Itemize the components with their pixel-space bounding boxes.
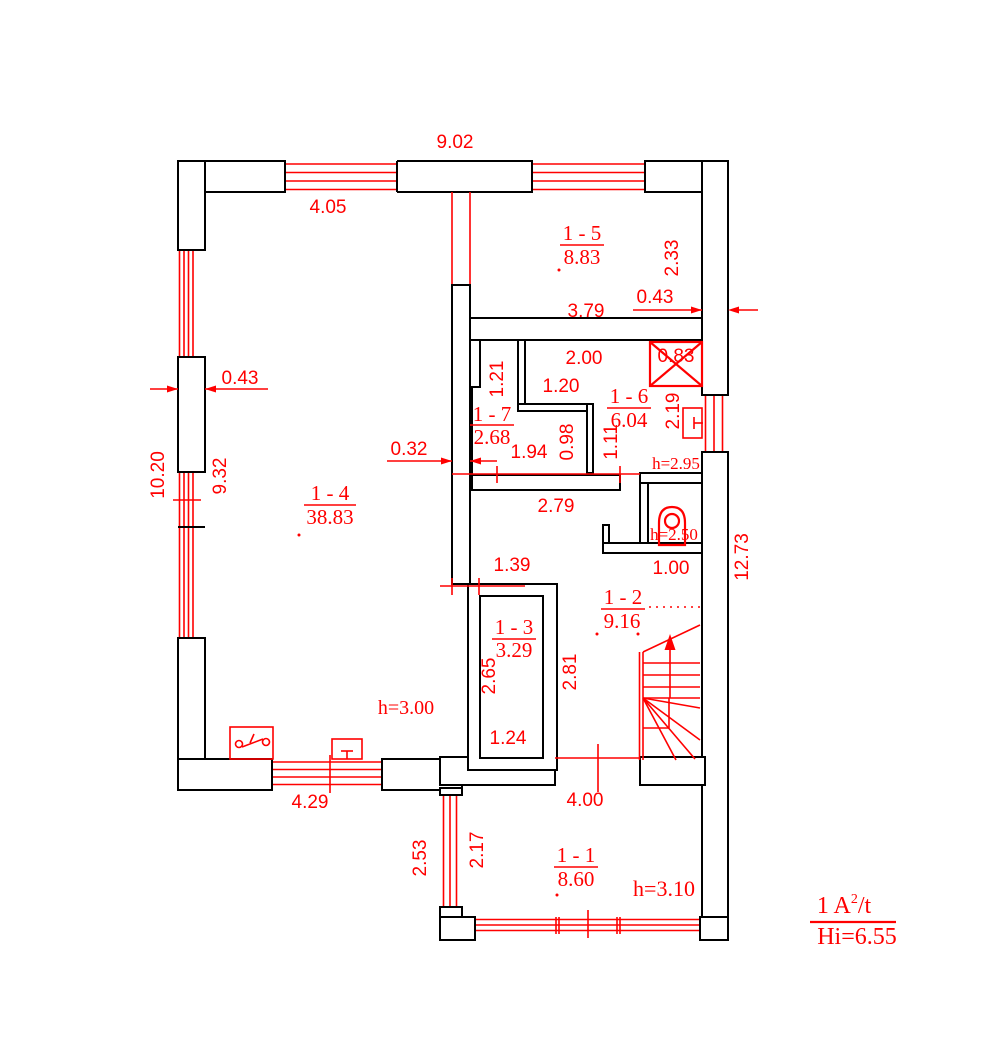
dim-room11-depth: 2.17 bbox=[467, 832, 488, 869]
window-left-lower bbox=[173, 472, 206, 638]
height-wc: h=2.50 bbox=[650, 525, 698, 544]
room-label-1-2: 1 - 2 9.16 bbox=[601, 585, 645, 633]
room-id: 1 - 3 bbox=[495, 615, 534, 639]
stairs-up-arrow-icon bbox=[665, 634, 676, 698]
room-id: 1 - 2 bbox=[604, 585, 643, 609]
room-area: 6.04 bbox=[611, 408, 648, 432]
staircase bbox=[640, 625, 701, 760]
legend-total-height: Hi=6.55 bbox=[817, 924, 897, 950]
room-area: 8.83 bbox=[564, 245, 601, 269]
window-top-left bbox=[285, 160, 397, 193]
dim-hall-width: 2.79 bbox=[538, 496, 575, 517]
room-label-1-3: 1 - 3 3.29 bbox=[492, 615, 536, 662]
height-room14: h=3.00 bbox=[378, 697, 434, 719]
dim-wall-left: 0.43 bbox=[222, 368, 259, 389]
room-id: 1 - 5 bbox=[563, 221, 602, 245]
dim-room16-niche-depth: 1.20 bbox=[543, 376, 580, 397]
dim-room17-width: 1.94 bbox=[511, 442, 548, 463]
title-block: 1 A2/t Hi=6.55 bbox=[810, 892, 897, 950]
dim-room16-niche-width: 2.00 bbox=[566, 348, 603, 369]
dim-room15-depth: 2.33 bbox=[662, 240, 683, 277]
dim-room15-width: 3.79 bbox=[568, 301, 605, 322]
dim-shaft: 0.83 bbox=[658, 346, 695, 367]
floor-plan-drawing: 9.02 4.05 3.79 0.43 0.43 0.32 2.00 1.20 … bbox=[0, 0, 986, 1039]
room-area: 9.16 bbox=[604, 609, 641, 633]
room-id: 1 - 6 bbox=[610, 384, 649, 408]
dim-hall-passage: 1.39 bbox=[494, 555, 531, 576]
dim-room13-depth: 2.65 bbox=[479, 658, 500, 695]
floor-plan: 9.02 4.05 3.79 0.43 0.43 0.32 2.00 1.20 … bbox=[0, 0, 986, 1039]
room-label-1-4: 1 - 4 38.83 bbox=[304, 481, 356, 529]
radiator-bottom-icon bbox=[332, 739, 362, 759]
room-label-1-1: 1 - 1 8.60 bbox=[554, 843, 598, 891]
room-label-1-6: 1 - 6 6.04 bbox=[607, 384, 651, 432]
window-bottom-room14 bbox=[272, 755, 382, 793]
room-label-1-7: 1 - 7 2.68 bbox=[470, 402, 514, 449]
dim-right-outer: 12.73 bbox=[732, 533, 753, 581]
dim-room17-depth: 0.98 bbox=[557, 424, 578, 461]
room-area: 38.83 bbox=[306, 505, 353, 529]
room-id: 1 - 4 bbox=[311, 481, 350, 505]
dim-left-outer: 10.20 bbox=[148, 451, 169, 499]
room-id: 1 - 1 bbox=[557, 843, 596, 867]
dim-room14-bottom: 4.29 bbox=[292, 792, 329, 813]
dim-niche-depth: 1.21 bbox=[487, 361, 508, 398]
dim-partition: 0.32 bbox=[391, 439, 428, 460]
window-left-upper bbox=[177, 250, 206, 357]
dim-room11-width: 4.00 bbox=[567, 790, 604, 811]
height-room11: h=3.10 bbox=[633, 876, 695, 901]
electrical-switch-icon bbox=[230, 727, 273, 759]
window-porch-left bbox=[439, 795, 463, 907]
dim-hall-depth: 2.81 bbox=[560, 654, 581, 691]
dim-building-width: 9.02 bbox=[437, 132, 474, 153]
door-opening-dim-line bbox=[555, 744, 640, 792]
dim-room16-depth: 2.19 bbox=[663, 393, 684, 430]
window-top-right bbox=[532, 160, 645, 193]
dim-room14-width: 4.05 bbox=[310, 197, 347, 218]
dim-wc-width: 1.00 bbox=[653, 558, 690, 579]
room-id: 1 - 7 bbox=[473, 402, 512, 426]
room-area: 2.68 bbox=[474, 425, 511, 449]
dim-left-inner: 9.32 bbox=[210, 458, 231, 495]
window-porch-bottom bbox=[475, 910, 700, 941]
dim-wall-right: 0.43 bbox=[637, 287, 674, 308]
radiator-right-icon bbox=[683, 408, 703, 438]
dim-room13-width: 1.24 bbox=[490, 728, 527, 749]
window-right bbox=[701, 395, 729, 452]
dim-porch-depth: 2.53 bbox=[410, 840, 431, 877]
room-area: 3.29 bbox=[496, 638, 533, 662]
height-room16: h=2.95 bbox=[652, 454, 700, 473]
room-area: 8.60 bbox=[558, 867, 595, 891]
legend-line1: 1 A2/t bbox=[817, 892, 872, 919]
room-label-1-5: 1 - 5 8.83 bbox=[560, 221, 604, 269]
